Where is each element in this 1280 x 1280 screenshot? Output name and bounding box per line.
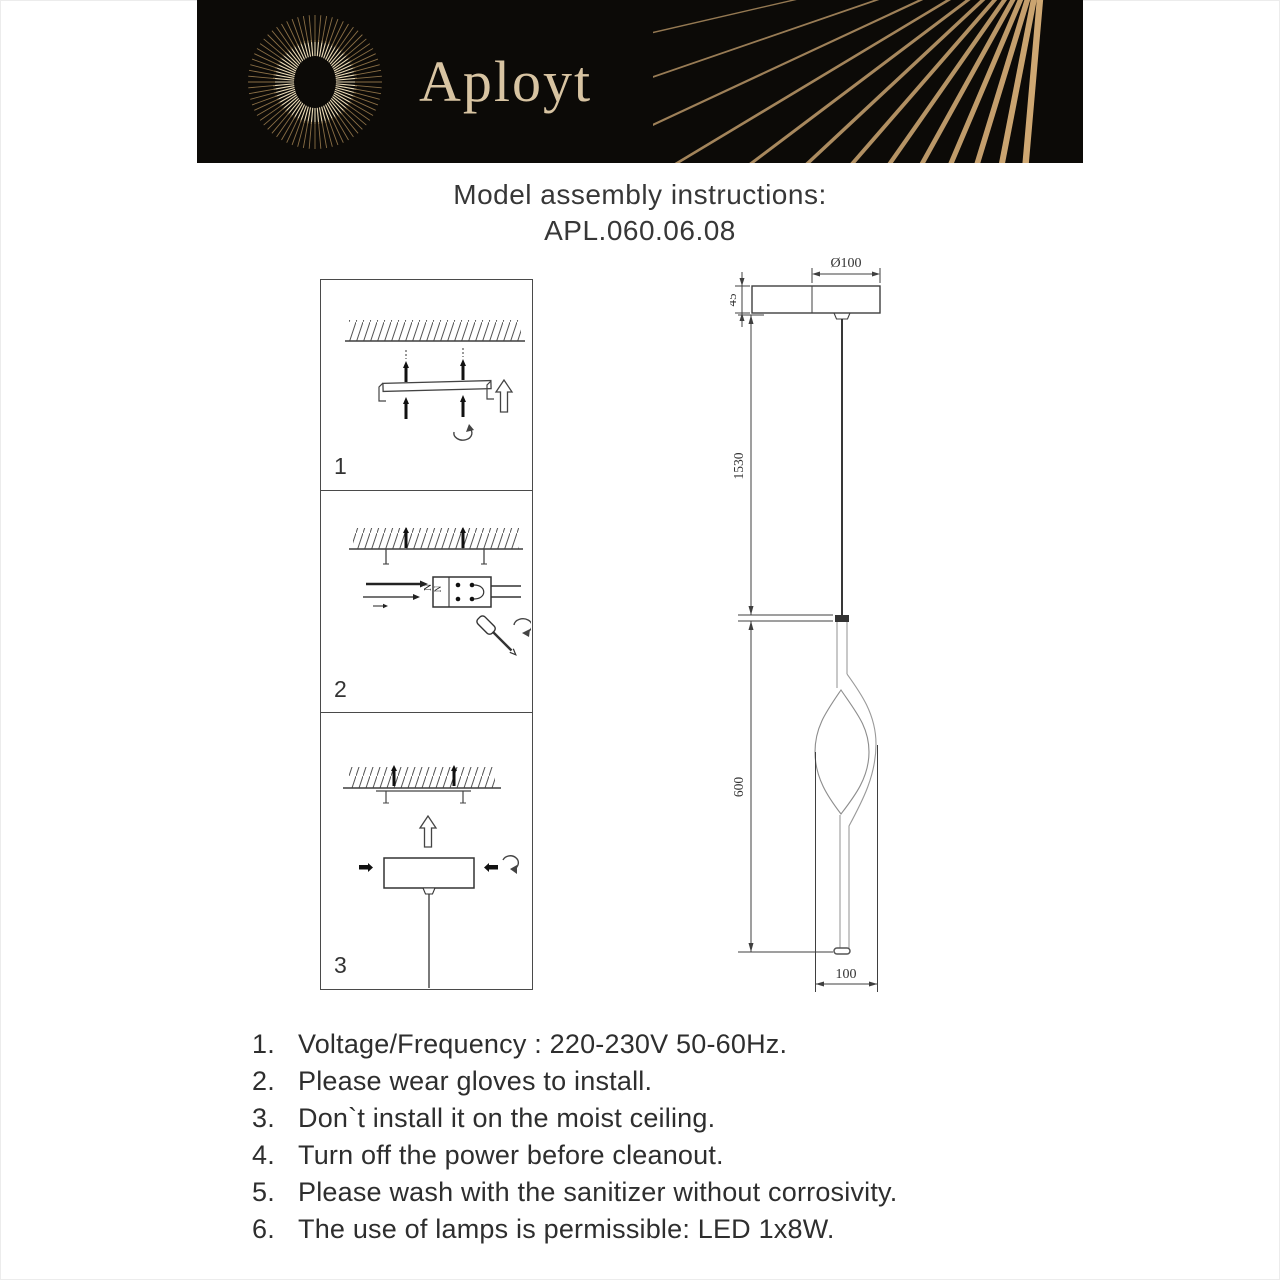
item-text: Turn off the power before cleanout. <box>298 1140 724 1171</box>
screws-upper <box>403 348 466 382</box>
brand-banner: Aployt <box>197 0 1083 163</box>
step-number: 3 <box>334 952 347 979</box>
brand-name: Aployt <box>419 0 592 163</box>
instruction-item: 1. Voltage/Frequency : 220-230V 50-60Hz. <box>252 1026 897 1063</box>
item-number: 6. <box>252 1214 298 1245</box>
terminal-block: N <box>433 577 521 607</box>
model-number: APL.060.06.08 <box>0 215 1280 247</box>
up-arrow-icon <box>496 380 512 412</box>
instruction-item: 5. Please wash with the sanitizer withou… <box>252 1174 897 1211</box>
dim-cable-length <box>738 315 833 615</box>
dim-cable-length-label: 1530 <box>731 452 746 479</box>
step-number: 1 <box>334 453 347 480</box>
item-text: The use of lamps is permissible: LED 1x8… <box>298 1214 835 1245</box>
canopy <box>384 858 474 988</box>
instruction-sheet: Aployt Model assembly instructions: APL.… <box>0 0 1280 1280</box>
instruction-item: 3. Don`t install it on the moist ceiling… <box>252 1100 897 1137</box>
item-text: Please wash with the sanitizer without c… <box>298 1177 897 1208</box>
step-3-illustration <box>321 713 531 988</box>
ceiling-hatch <box>349 767 495 788</box>
technical-drawing: Ø100 45 1530 600 <box>730 255 895 1000</box>
instruction-list: 1. Voltage/Frequency : 220-230V 50-60Hz.… <box>252 1026 897 1248</box>
item-number: 5. <box>252 1177 298 1208</box>
dim-diameter-label: Ø100 <box>830 256 861 271</box>
item-number: 3. <box>252 1103 298 1134</box>
dim-body-height <box>738 621 833 952</box>
ceiling-hatch <box>353 528 519 549</box>
dim-canopy-height-label: 45 <box>730 294 739 307</box>
step-3-panel: 3 <box>320 712 533 990</box>
item-text: Voltage/Frequency : 220-230V 50-60Hz. <box>298 1029 787 1060</box>
item-number: 1. <box>252 1029 298 1060</box>
step-1-panel: 1 <box>320 279 533 491</box>
sunburst-center <box>294 56 336 108</box>
dim-body-width-label: 100 <box>836 967 857 982</box>
screws-lower <box>403 395 466 419</box>
ceiling-hatch <box>349 320 521 341</box>
instruction-item: 6. The use of lamps is permissible: LED … <box>252 1211 897 1248</box>
item-number: 2. <box>252 1066 298 1097</box>
item-text: Please wear gloves to install. <box>298 1066 652 1097</box>
step-2-illustration: N N <box>321 491 531 712</box>
page-title: Model assembly instructions: <box>0 179 1280 211</box>
item-number: 4. <box>252 1140 298 1171</box>
step-number: 2 <box>334 676 347 703</box>
screwdriver-icon <box>475 614 519 658</box>
instruction-item: 2. Please wear gloves to install. <box>252 1063 897 1100</box>
up-arrow-icon <box>420 816 436 847</box>
assembly-steps: 1 <box>320 279 533 990</box>
step-1-illustration <box>321 280 531 489</box>
dim-body-width <box>816 745 878 992</box>
canopy-side-view <box>752 286 880 319</box>
cable-connector <box>835 615 849 622</box>
item-text: Don`t install it on the moist ceiling. <box>298 1103 715 1134</box>
wires: N <box>363 580 434 608</box>
mounting-bracket <box>379 381 494 401</box>
lamp-body <box>815 622 876 954</box>
step-2-panel: N N <box>320 490 533 714</box>
terminal-label: N <box>433 585 443 592</box>
dim-body-height-label: 600 <box>731 777 746 798</box>
sunburst-logo-icon <box>240 7 390 157</box>
instruction-item: 4. Turn off the power before cleanout. <box>252 1137 897 1174</box>
rays-decoration-icon <box>653 0 1083 163</box>
